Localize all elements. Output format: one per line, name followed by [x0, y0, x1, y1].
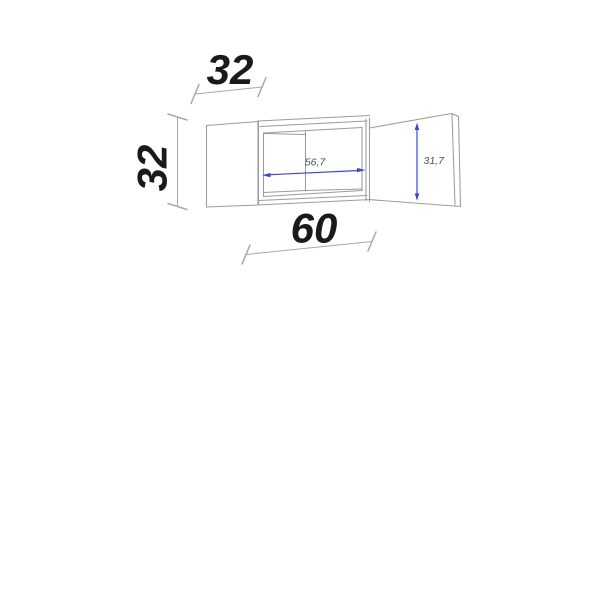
door-height-label: 31,7: [424, 155, 446, 167]
door-top-edge: [370, 114, 452, 129]
door-right-outer-edge: [459, 117, 461, 207]
interior-back-floor-edge: [306, 189, 363, 191]
opening-top-edge: [264, 128, 363, 134]
interior-wall-top-edge: [264, 134, 306, 135]
door-height-arrow-top: [415, 123, 420, 130]
depth-dimension: 32: [191, 46, 266, 104]
door-right-inner-edge: [452, 115, 455, 206]
carcass-top-outer-edge: [258, 116, 370, 122]
interior-width-dimension: 56,7: [262, 157, 366, 178]
width-dimension-label: 60: [291, 205, 338, 252]
width-dimension: 60: [242, 205, 376, 265]
height-dimension-label: 32: [129, 145, 176, 192]
door-bottom-edge: [368, 200, 461, 207]
interior-wall-bottom-edge: [264, 191, 306, 193]
depth-dimension-label: 32: [207, 46, 254, 93]
carcass-top-inner-edge: [260, 121, 367, 127]
cabinet-door-open: [368, 114, 461, 207]
door-height-dimension: 31,7: [415, 123, 445, 201]
cabinet-dimension-diagram: 32 32 60 56,7 31,7: [0, 0, 600, 600]
interior-width-arrow-right: [357, 168, 366, 172]
cabinet-carcass: [207, 116, 372, 208]
interior-width-dimension-line: [268, 171, 360, 175]
height-dimension: 32: [129, 114, 188, 210]
left-side-panel: [207, 122, 259, 208]
interior-width-label: 56,7: [305, 157, 327, 169]
technical-drawing-canvas: 32 32 60 56,7 31,7: [0, 0, 600, 600]
door-height-arrow-bottom: [415, 193, 420, 200]
